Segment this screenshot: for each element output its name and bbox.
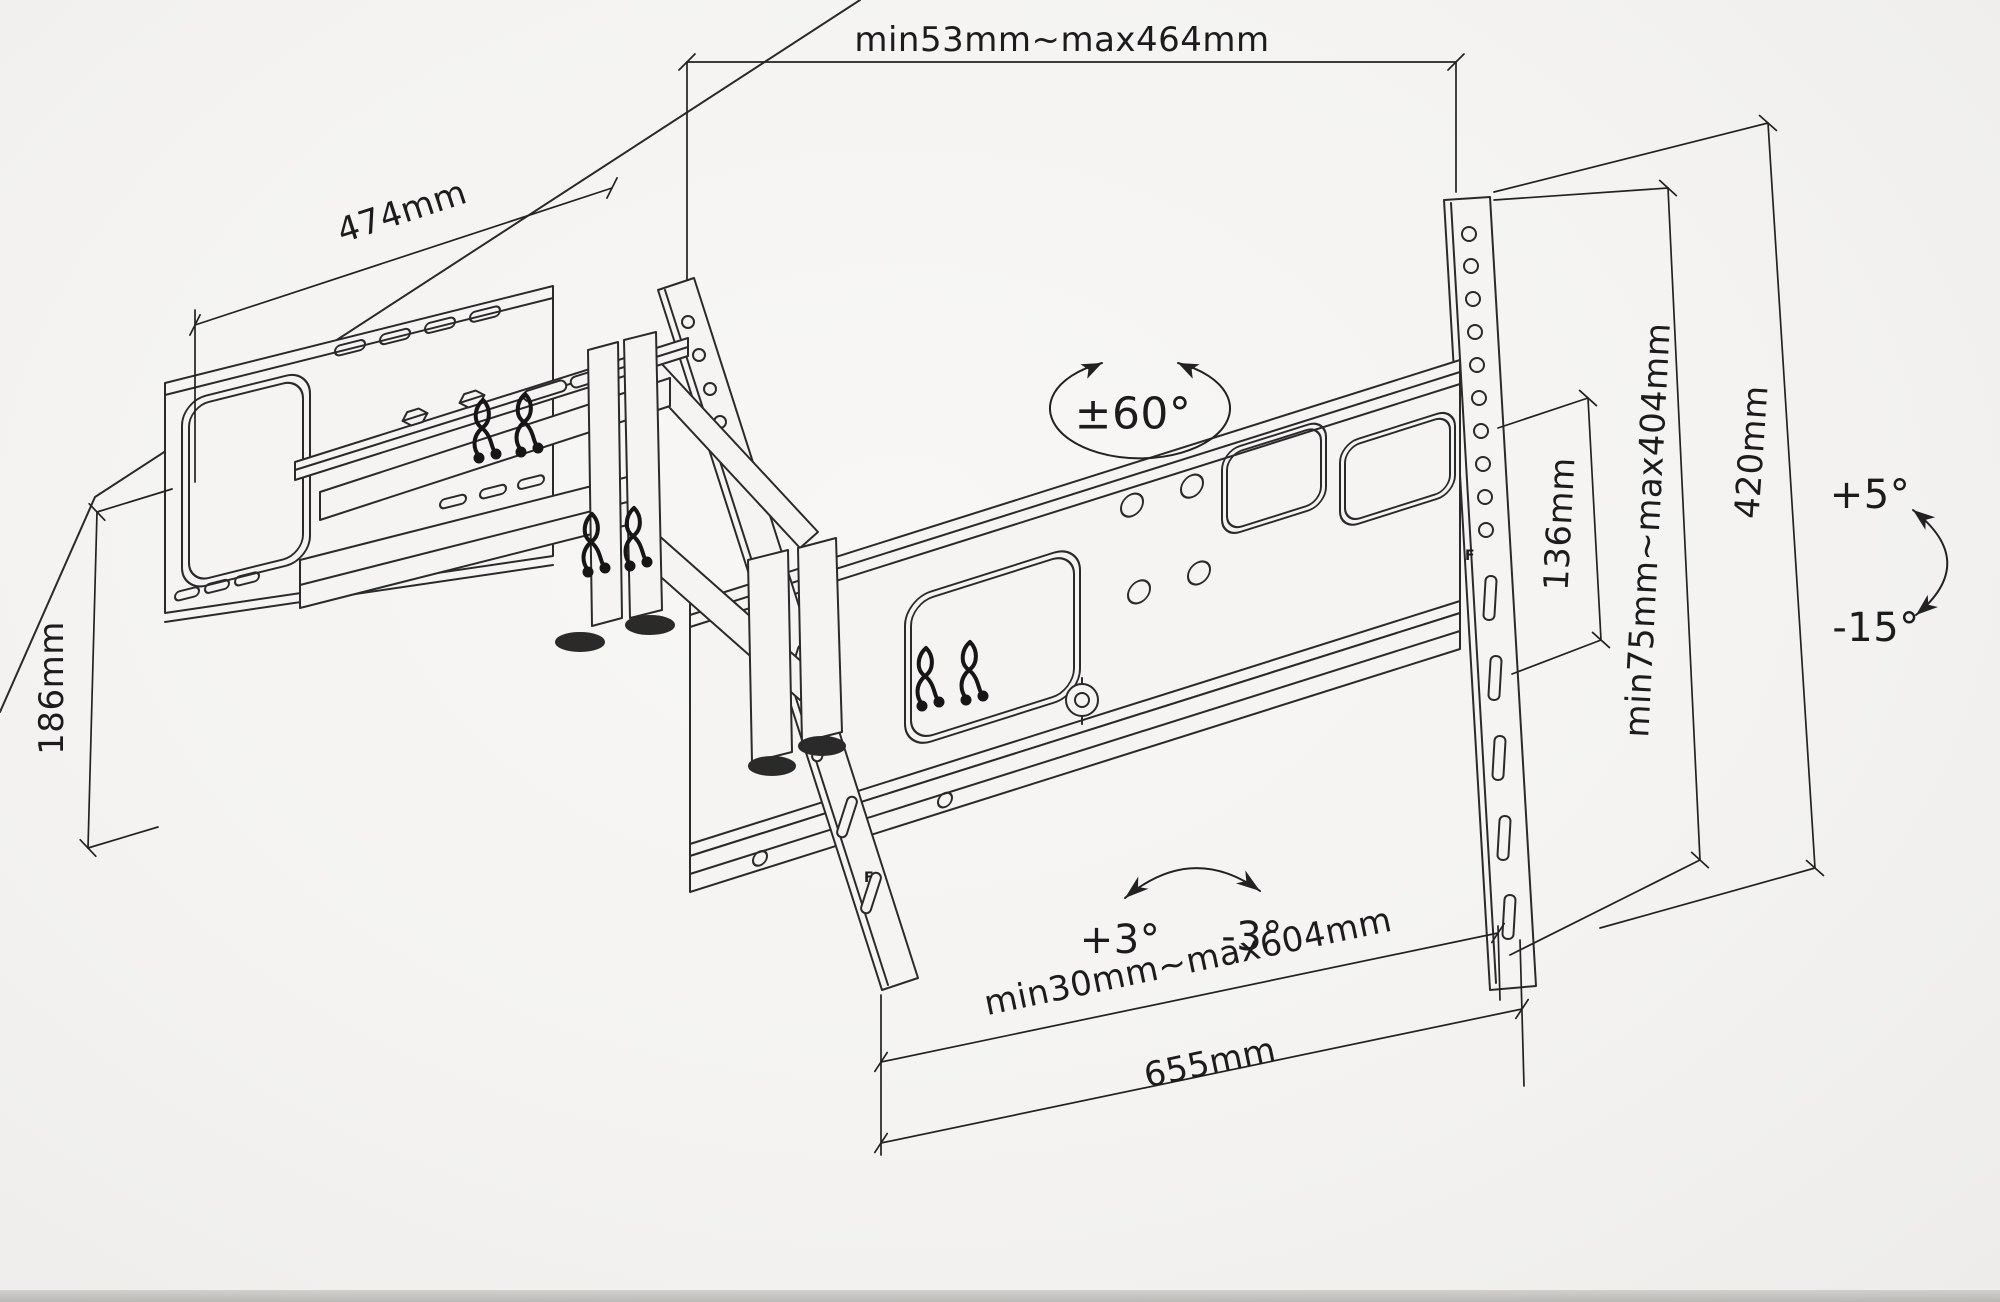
dim-label-top-span: min53mm~max464mm <box>854 20 1269 60</box>
angle-label-tilt-down: -15° <box>1832 605 1919 651</box>
angle-label-tilt-up: +5° <box>1830 472 1910 518</box>
angle-label-swivel: ±60° <box>1075 389 1192 440</box>
dim-label-wall-plate-height: 186mm <box>32 621 72 755</box>
rail-marking-right: F <box>1465 548 1475 564</box>
rail-marking-left: F <box>864 870 874 886</box>
tv-mount-dimension-diagram: min53mm~max464mm 474mm 186mm ±60° 136mm … <box>0 0 2000 1302</box>
dim-label-bracket-end-height: 136mm <box>1537 456 1584 592</box>
photo-bottom-edge <box>0 1290 2000 1302</box>
mount-line-drawing <box>0 0 2000 1302</box>
